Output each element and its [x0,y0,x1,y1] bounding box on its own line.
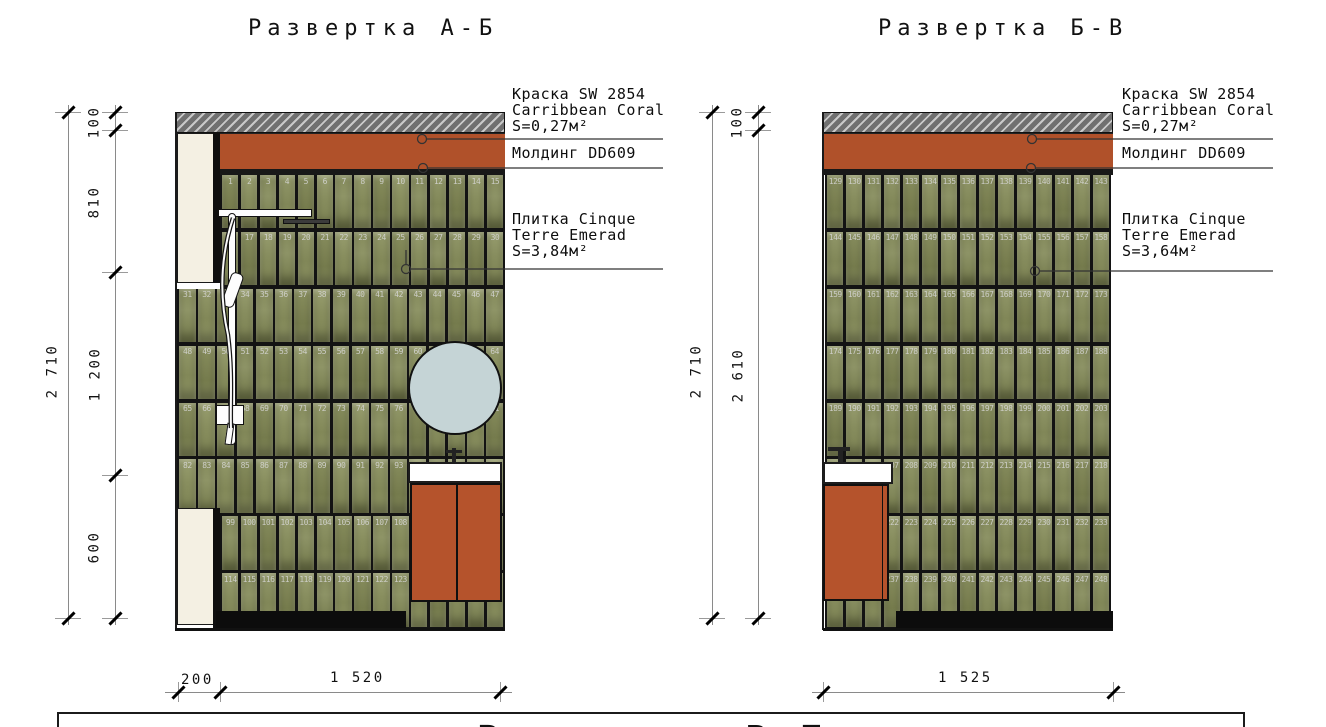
tile: 45 [448,289,465,342]
tile: 137 [979,175,995,228]
tile: 142 [1074,175,1090,228]
tile-number: 115 [241,575,257,584]
tile-number: 149 [922,233,938,242]
tile: 31 [179,289,196,342]
tile-number: 198 [998,404,1014,413]
tile: 188 [1093,346,1109,399]
tile: 171 [1055,289,1071,342]
tile-number: 25 [392,233,408,242]
tile: 201 [1055,403,1071,456]
tile-number: 69 [256,404,273,413]
tile-number: 120 [335,575,351,584]
tile-number: 82 [179,461,196,470]
tile: 58 [371,346,388,399]
molding-note-right: Молдинг DD609 [1122,145,1246,161]
tile-note-line2: Terre Emerad [512,227,636,243]
tile: 99 [222,516,238,569]
tile-number: 211 [960,461,976,470]
floor-strip-right [896,611,1113,629]
tile-number: 164 [922,290,938,299]
tile: 86 [256,459,273,512]
tile-number: 105 [335,518,351,527]
tile: 200 [1036,403,1052,456]
wall-panel-upper-left [177,133,214,283]
tile-number: 177 [884,347,900,356]
tile-number: 88 [294,461,311,470]
tile-number: 7 [335,177,351,186]
tile: 25 [392,232,408,285]
tile-number: 225 [941,518,957,527]
tile: 88 [294,459,311,512]
shower-head [283,219,330,224]
tile-number: 213 [998,461,1014,470]
tile-row: 161718192021222324252627282930 [220,232,505,289]
tile-number: 2 [241,177,257,186]
tile-number: 154 [1017,233,1033,242]
tile-number: 241 [960,575,976,584]
tile: 133 [903,175,919,228]
tile-number: 51 [237,347,254,356]
paint-note-line1: Краска SW 2854 [512,86,665,102]
tile: 136 [960,175,976,228]
tile: 192 [884,403,900,456]
dim-1520-bottom: 1 520 [330,670,385,686]
tile: 89 [313,459,330,512]
tile-number: 40 [352,290,369,299]
tile-number: 72 [313,404,330,413]
tile: 102 [279,516,295,569]
tile-number: 191 [865,404,881,413]
tile-number: 141 [1055,177,1071,186]
elevation-title-left: Развертка А-Б [248,16,498,41]
tile-number: 228 [998,518,1014,527]
tile: 167 [979,289,995,342]
dim-1525-bottom: 1 525 [938,670,993,686]
tile: 43 [409,289,426,342]
tile-number: 27 [430,233,446,242]
tile: 44 [429,289,446,342]
tile: 211 [960,459,976,512]
paint-note-area: S=0,27м² [512,118,665,134]
cabinet-door-divider [456,485,458,600]
tile-number: 131 [865,177,881,186]
tile: 182 [979,346,995,399]
tile: 148 [903,232,919,285]
tile-number: 76 [390,404,407,413]
tile: 36 [275,289,292,342]
dim-line-segments-left [115,105,116,625]
tile: 202 [1074,403,1090,456]
tile: 143 [1093,175,1109,228]
tile-number: 165 [941,290,957,299]
tile: 103 [298,516,314,569]
tile-number: 29 [468,233,484,242]
paint-band-right [823,133,1113,169]
elevation-title-right: Развертка Б-В [878,16,1128,41]
tile-number: 153 [998,233,1014,242]
faucet-spout-icon [828,447,850,451]
tile-number: 200 [1036,404,1052,413]
tile: 23 [354,232,370,285]
tile-number: 199 [1017,404,1033,413]
tile-number: 136 [960,177,976,186]
dim-total-right: 2 710 [688,344,704,399]
tile-number: 150 [941,233,957,242]
tile: 199 [1017,403,1033,456]
tile: 105 [335,516,351,569]
floor-line-right [823,628,1113,631]
tile-number: 243 [998,575,1014,584]
tile: 34 [237,289,254,342]
tile: 218 [1093,459,1109,512]
tile-number: 58 [371,347,388,356]
tile: 225 [941,516,957,569]
dim-line-bottom-right [812,692,1125,693]
tile-number: 182 [979,347,995,356]
tile: 130 [846,175,862,228]
faucet-handle-icon [446,450,462,453]
tile-number: 185 [1036,347,1052,356]
tile-number: 180 [941,347,957,356]
tile-number: 172 [1074,290,1090,299]
tile: 54 [294,346,311,399]
tile-number: 117 [279,575,295,584]
tile: 39 [333,289,350,342]
tile-number: 116 [260,575,276,584]
tile-number: 30 [487,233,503,242]
tile-number: 166 [960,290,976,299]
tile-number: 212 [979,461,995,470]
paint-note-line2: Carribbean Coral [1122,102,1275,118]
tile: 32 [198,289,215,342]
tile: 132 [884,175,900,228]
tile: 164 [922,289,938,342]
tile: 48 [179,346,196,399]
tile-note-line1: Плитка Cinque [1122,211,1246,227]
tile: 172 [1074,289,1090,342]
tile: 233 [1093,516,1109,569]
tile-row: 1441451461471481491501511521531541551561… [825,232,1111,289]
tile-row: 1291301311321331341351361371381391401411… [825,175,1111,232]
tile-number: 31 [179,290,196,299]
tile: 180 [941,346,957,399]
tile-number: 148 [903,233,919,242]
tile-number: 54 [294,347,311,356]
tile: 91 [352,459,369,512]
tile: 76 [390,403,407,456]
tile: 212 [979,459,995,512]
tile-number: 195 [941,404,957,413]
dim-line-total-left [68,105,69,625]
tile-number: 9 [373,177,389,186]
tile: 176 [865,346,881,399]
tile-number: 66 [198,404,215,413]
tile: 139 [1017,175,1033,228]
tile-number: 85 [237,461,254,470]
tile-number: 102 [279,518,295,527]
bottom-panel-caption: Развертка В-Г [59,718,1243,727]
tile-number: 227 [979,518,995,527]
tile-number: 229 [1017,518,1033,527]
tile: 8 [354,175,370,228]
drawing-sheet: Развертка А-Б Развертка Б-В 123456789101… [0,0,1326,727]
tile: 93 [390,459,407,512]
tile: 155 [1036,232,1052,285]
tile: 166 [960,289,976,342]
tile-number: 89 [313,461,330,470]
tile: 70 [275,403,292,456]
tile: 162 [884,289,900,342]
tile-number: 101 [260,518,276,527]
tile: 170 [1036,289,1052,342]
tile: 224 [922,516,938,569]
tile: 57 [352,346,369,399]
tile: 177 [884,346,900,399]
tile-number: 138 [998,177,1014,186]
tile-number: 15 [487,177,503,186]
tile-number: 10 [392,177,408,186]
tile-number: 188 [1093,347,1109,356]
tile-number: 143 [1093,177,1109,186]
tile-number: 179 [922,347,938,356]
tile-number: 193 [903,404,919,413]
tile-number: 90 [333,461,350,470]
vanity-cabinet-left [410,483,502,602]
tile-number: 215 [1036,461,1052,470]
tile: 217 [1074,459,1090,512]
tile: 56 [333,346,350,399]
tile: 231 [1055,516,1071,569]
tile: 175 [846,346,862,399]
tile: 151 [960,232,976,285]
tile: 87 [275,459,292,512]
tile: 169 [1017,289,1033,342]
tile-number: 52 [256,347,273,356]
tile: 208 [903,459,919,512]
tile: 186 [1055,346,1071,399]
tile: 159 [827,289,843,342]
tile-number: 53 [275,347,292,356]
tile-number: 190 [846,404,862,413]
tile-number: 163 [903,290,919,299]
tile: 104 [317,516,333,569]
tile: 41 [371,289,388,342]
tile-number: 189 [827,404,843,413]
tile: 59 [390,346,407,399]
tile-number: 129 [827,177,843,186]
tile: 19 [279,232,295,285]
tile-note-left: Плитка Cinque Terre Emerad S=3,84м² [512,211,636,259]
tile: 3 [260,175,276,228]
tile-number: 20 [298,233,314,242]
tile-note-area: S=3,84м² [512,243,636,259]
tile: 51 [237,346,254,399]
tile-number: 161 [865,290,881,299]
tile: 66 [198,403,215,456]
tile-number: 118 [298,575,314,584]
tile: 194 [922,403,938,456]
tile: 13 [449,175,465,228]
tile: 141 [1055,175,1071,228]
tile-number: 3 [260,177,276,186]
countertop-left [408,462,502,483]
tile: 140 [1036,175,1052,228]
tile-number: 107 [373,518,389,527]
tile: 144 [827,232,843,285]
tile-number: 17 [241,233,257,242]
tile: 82 [179,459,196,512]
tile-number: 169 [1017,290,1033,299]
tile-number: 238 [903,575,919,584]
tile-number: 22 [335,233,351,242]
tile: 174 [827,346,843,399]
tile-number: 91 [352,461,369,470]
tile: 147 [884,232,900,285]
tile-row: 1741751761771781791801811821831841851861… [825,346,1111,403]
tile: 156 [1055,232,1071,285]
tile-number: 144 [827,233,843,242]
tile-number: 135 [941,177,957,186]
tile-number: 43 [409,290,426,299]
tile: 129 [827,175,843,228]
tile: 92 [371,459,388,512]
tile: 20 [298,232,314,285]
tile: 83 [198,459,215,512]
tile: 210 [941,459,957,512]
tile-number: 134 [922,177,938,186]
tile-number: 247 [1074,575,1090,584]
tile-number: 151 [960,233,976,242]
tile-number: 48 [179,347,196,356]
tile-number: 244 [1017,575,1033,584]
tile: 65 [179,403,196,456]
tile: 229 [1017,516,1033,569]
tile-number: 5 [298,177,314,186]
tile-number: 137 [979,177,995,186]
tile: 47 [486,289,503,342]
tile: 73 [333,403,350,456]
tile: 165 [941,289,957,342]
tile: 163 [903,289,919,342]
countertop-right [823,462,893,484]
ceiling-hatch-strip-left [175,112,505,133]
tile-number: 246 [1055,575,1071,584]
tile-number: 178 [903,347,919,356]
tile: 85 [237,459,254,512]
tile-number: 73 [333,404,350,413]
tile-number: 56 [333,347,350,356]
tile-number: 192 [884,404,900,413]
tile-number: 142 [1074,177,1090,186]
tile: 55 [313,346,330,399]
tile-number: 233 [1093,518,1109,527]
tile-number: 186 [1055,347,1071,356]
tile-number: 103 [298,518,314,527]
tile: 195 [941,403,957,456]
tile-number: 176 [865,347,881,356]
tile-number: 12 [430,177,446,186]
tile-number: 232 [1074,518,1090,527]
tile-number: 210 [941,461,957,470]
vanity-cabinet-right [823,484,889,601]
tile: 29 [468,232,484,285]
tile: 158 [1093,232,1109,285]
tile-number: 146 [865,233,881,242]
tile: 26 [411,232,427,285]
tile-number: 38 [313,290,330,299]
tile-number: 171 [1055,290,1071,299]
tile: 24 [373,232,389,285]
tile-row: 123456789101112131415 [220,175,505,232]
dim-2610-right: 2 610 [730,348,746,403]
floor-strip-left [216,611,406,629]
tile-number: 106 [354,518,370,527]
tile: 149 [922,232,938,285]
tile: 184 [1017,346,1033,399]
tile-number: 39 [333,290,350,299]
tile-number: 45 [448,290,465,299]
tile-number: 245 [1036,575,1052,584]
tile: 228 [998,516,1014,569]
tile: 52 [256,346,273,399]
tile-number: 183 [998,347,1014,356]
paint-band-left [216,133,505,169]
tile: 106 [354,516,370,569]
tile: 38 [313,289,330,342]
tile-number: 226 [960,518,976,527]
tile-note-line2: Terre Emerad [1122,227,1246,243]
tile: 40 [352,289,369,342]
tile-number: 140 [1036,177,1052,186]
tile-number: 209 [922,461,938,470]
tile: 10 [392,175,408,228]
tile-number: 119 [317,575,333,584]
dim-total-left: 2 710 [44,344,60,399]
tile: 108 [392,516,408,569]
corner-bar-upper-left [213,133,220,283]
tile-number: 71 [294,404,311,413]
tile-number: 84 [217,461,234,470]
tile: 187 [1074,346,1090,399]
tile-number: 155 [1036,233,1052,242]
tile-number: 122 [373,575,389,584]
tile: 135 [941,175,957,228]
tile-number: 130 [846,177,862,186]
tile: 72 [313,403,330,456]
tile-number: 214 [1017,461,1033,470]
paint-note-area: S=0,27м² [1122,118,1275,134]
mirror [408,341,502,435]
tile-number: 121 [354,575,370,584]
tile: 2 [241,175,257,228]
dim-1200-left: 1 200 [87,347,103,402]
tile: 27 [430,232,446,285]
tile: 178 [903,346,919,399]
tile-number: 83 [198,461,215,470]
tile-number: 100 [241,518,257,527]
tile: 150 [941,232,957,285]
tile: 11 [411,175,427,228]
tile-number: 65 [179,404,196,413]
tile: 21 [317,232,333,285]
tile-number: 147 [884,233,900,242]
tile-number: 6 [317,177,333,186]
tile: 223 [903,516,919,569]
tile: 173 [1093,289,1109,342]
tile-number: 18 [260,233,276,242]
tile-number: 133 [903,177,919,186]
tile-number: 132 [884,177,900,186]
